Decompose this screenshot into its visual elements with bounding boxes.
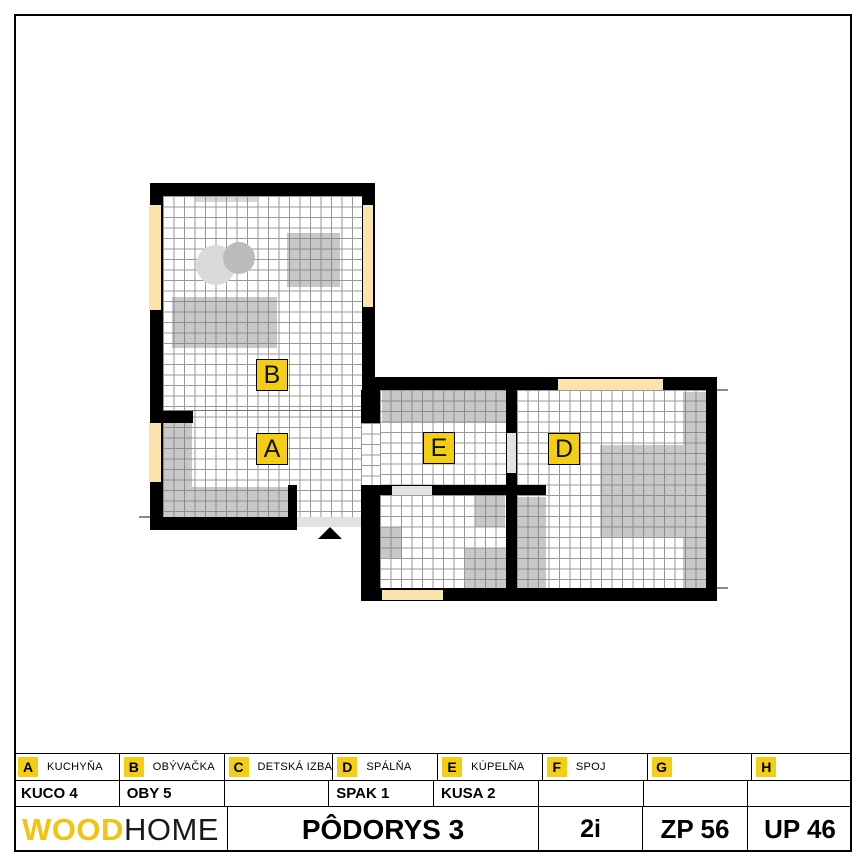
furniture-wardrobe-left	[518, 497, 546, 588]
furniture-round-chair-dark	[223, 242, 255, 274]
furniture-room-e-counter	[382, 391, 506, 423]
legend-cell-b: BOBÝVAČKA	[119, 754, 224, 780]
room-label-a: A	[256, 433, 288, 465]
door-e-to-bath	[392, 486, 432, 495]
legend-chip-c: C	[229, 757, 249, 777]
legend-label-e: KÚPELŇA	[471, 761, 524, 773]
legend-value: KUSA 2	[434, 785, 495, 802]
legend-cell-f: FSPOJ	[542, 754, 647, 780]
legend-chip-h: H	[756, 757, 776, 777]
legend-value-cell: SPAK 1	[328, 781, 433, 806]
legend-value-cell: OBY 5	[119, 781, 224, 806]
brand-logo: WOODHOME	[14, 807, 227, 852]
legend-chip-b: B	[124, 757, 144, 777]
legend-value-cell: KUCO 4	[14, 781, 119, 806]
title-block: WOODHOME PÔDORYS 3 2i ZP 56 UP 46	[14, 806, 852, 852]
legend-cell-c: CDETSKÁ IZBA	[224, 754, 333, 780]
legend-value: SPAK 1	[329, 785, 389, 802]
legend-cell-e: EKÚPELŇA	[437, 754, 542, 780]
legend-label-a: KUCHYŇA	[47, 761, 103, 773]
furniture-wardrobe-right	[683, 392, 706, 588]
wall-a-bottom	[150, 517, 297, 530]
wall-top-b	[150, 183, 375, 196]
wall-mid-left-upper	[361, 390, 380, 423]
wall-mid-left-lower	[361, 485, 380, 601]
furniture-sofa	[172, 297, 277, 348]
window-b-right	[363, 205, 373, 307]
legend-value-cell	[747, 781, 852, 806]
legend-chip-a: A	[18, 757, 38, 777]
window-d-top	[558, 379, 663, 390]
legend-row-names: AKUCHYŇA BOBÝVAČKA CDETSKÁ IZBA DSPÁLŇA …	[14, 753, 852, 780]
legend-chip-f: F	[547, 757, 567, 777]
furniture-bath-wc	[465, 548, 507, 588]
furniture-bath-shower	[475, 495, 505, 527]
legend-value-cell	[643, 781, 748, 806]
wall-ab-stub	[150, 411, 193, 423]
door-e-to-d	[507, 433, 516, 473]
legend-value-cell	[224, 781, 329, 806]
furniture-shelf	[195, 196, 257, 202]
dimension-tick	[717, 587, 728, 589]
legend-label-f: SPOJ	[576, 761, 606, 773]
room-label-e: E	[423, 432, 455, 464]
furniture-kitchen-counter-left	[163, 423, 192, 487]
legend-cell-h: H	[751, 754, 856, 780]
door-entrance	[297, 517, 361, 527]
legend-label-c: DETSKÁ IZBA	[258, 761, 333, 773]
legend-cell-g: G	[647, 754, 752, 780]
up-value: UP 46	[747, 807, 852, 852]
legend-label-b: OBÝVAČKA	[153, 761, 215, 773]
legend-label-d: SPÁLŇA	[366, 761, 411, 773]
room-label-b: B	[256, 359, 288, 391]
layout-code: 2i	[538, 807, 642, 852]
room-label-d: D	[548, 433, 580, 465]
zp-value: ZP 56	[642, 807, 747, 852]
legend-row-values: KUCO 4 OBY 5 SPAK 1 KUSA 2	[14, 780, 852, 806]
window-a-left	[149, 423, 161, 482]
drawing-title: PÔDORYS 3	[227, 807, 538, 852]
furniture-table	[287, 233, 340, 287]
legend-chip-g: G	[652, 757, 672, 777]
wall-right	[706, 377, 717, 601]
wall-e-bottom	[361, 485, 546, 495]
floor-corridor-neck	[361, 423, 381, 485]
legend-chip-d: D	[337, 757, 357, 777]
furniture-bed	[600, 445, 683, 537]
wall-top-mid	[362, 377, 717, 390]
legend-value-cell: KUSA 2	[433, 781, 538, 806]
furniture-bath-sink	[380, 527, 402, 558]
legend-cell-a: AKUCHYŇA	[14, 754, 119, 780]
window-b-left	[149, 205, 161, 310]
legend-value: KUCO 4	[14, 785, 78, 802]
brand-wood: WOOD	[22, 812, 124, 848]
window-bath-bottom	[382, 590, 443, 600]
legend-value-cell	[538, 781, 643, 806]
legend-chip-e: E	[442, 757, 462, 777]
brand-home: HOME	[124, 812, 219, 848]
legend-value: OBY 5	[120, 785, 172, 802]
dimension-tick	[139, 516, 150, 518]
wall-entry-stub	[288, 485, 297, 517]
entrance-arrow-icon	[318, 527, 342, 539]
furniture-kitchen-counter-bottom	[163, 487, 288, 517]
legend-cell-d: DSPÁLŇA	[332, 754, 437, 780]
dimension-tick	[717, 389, 728, 391]
